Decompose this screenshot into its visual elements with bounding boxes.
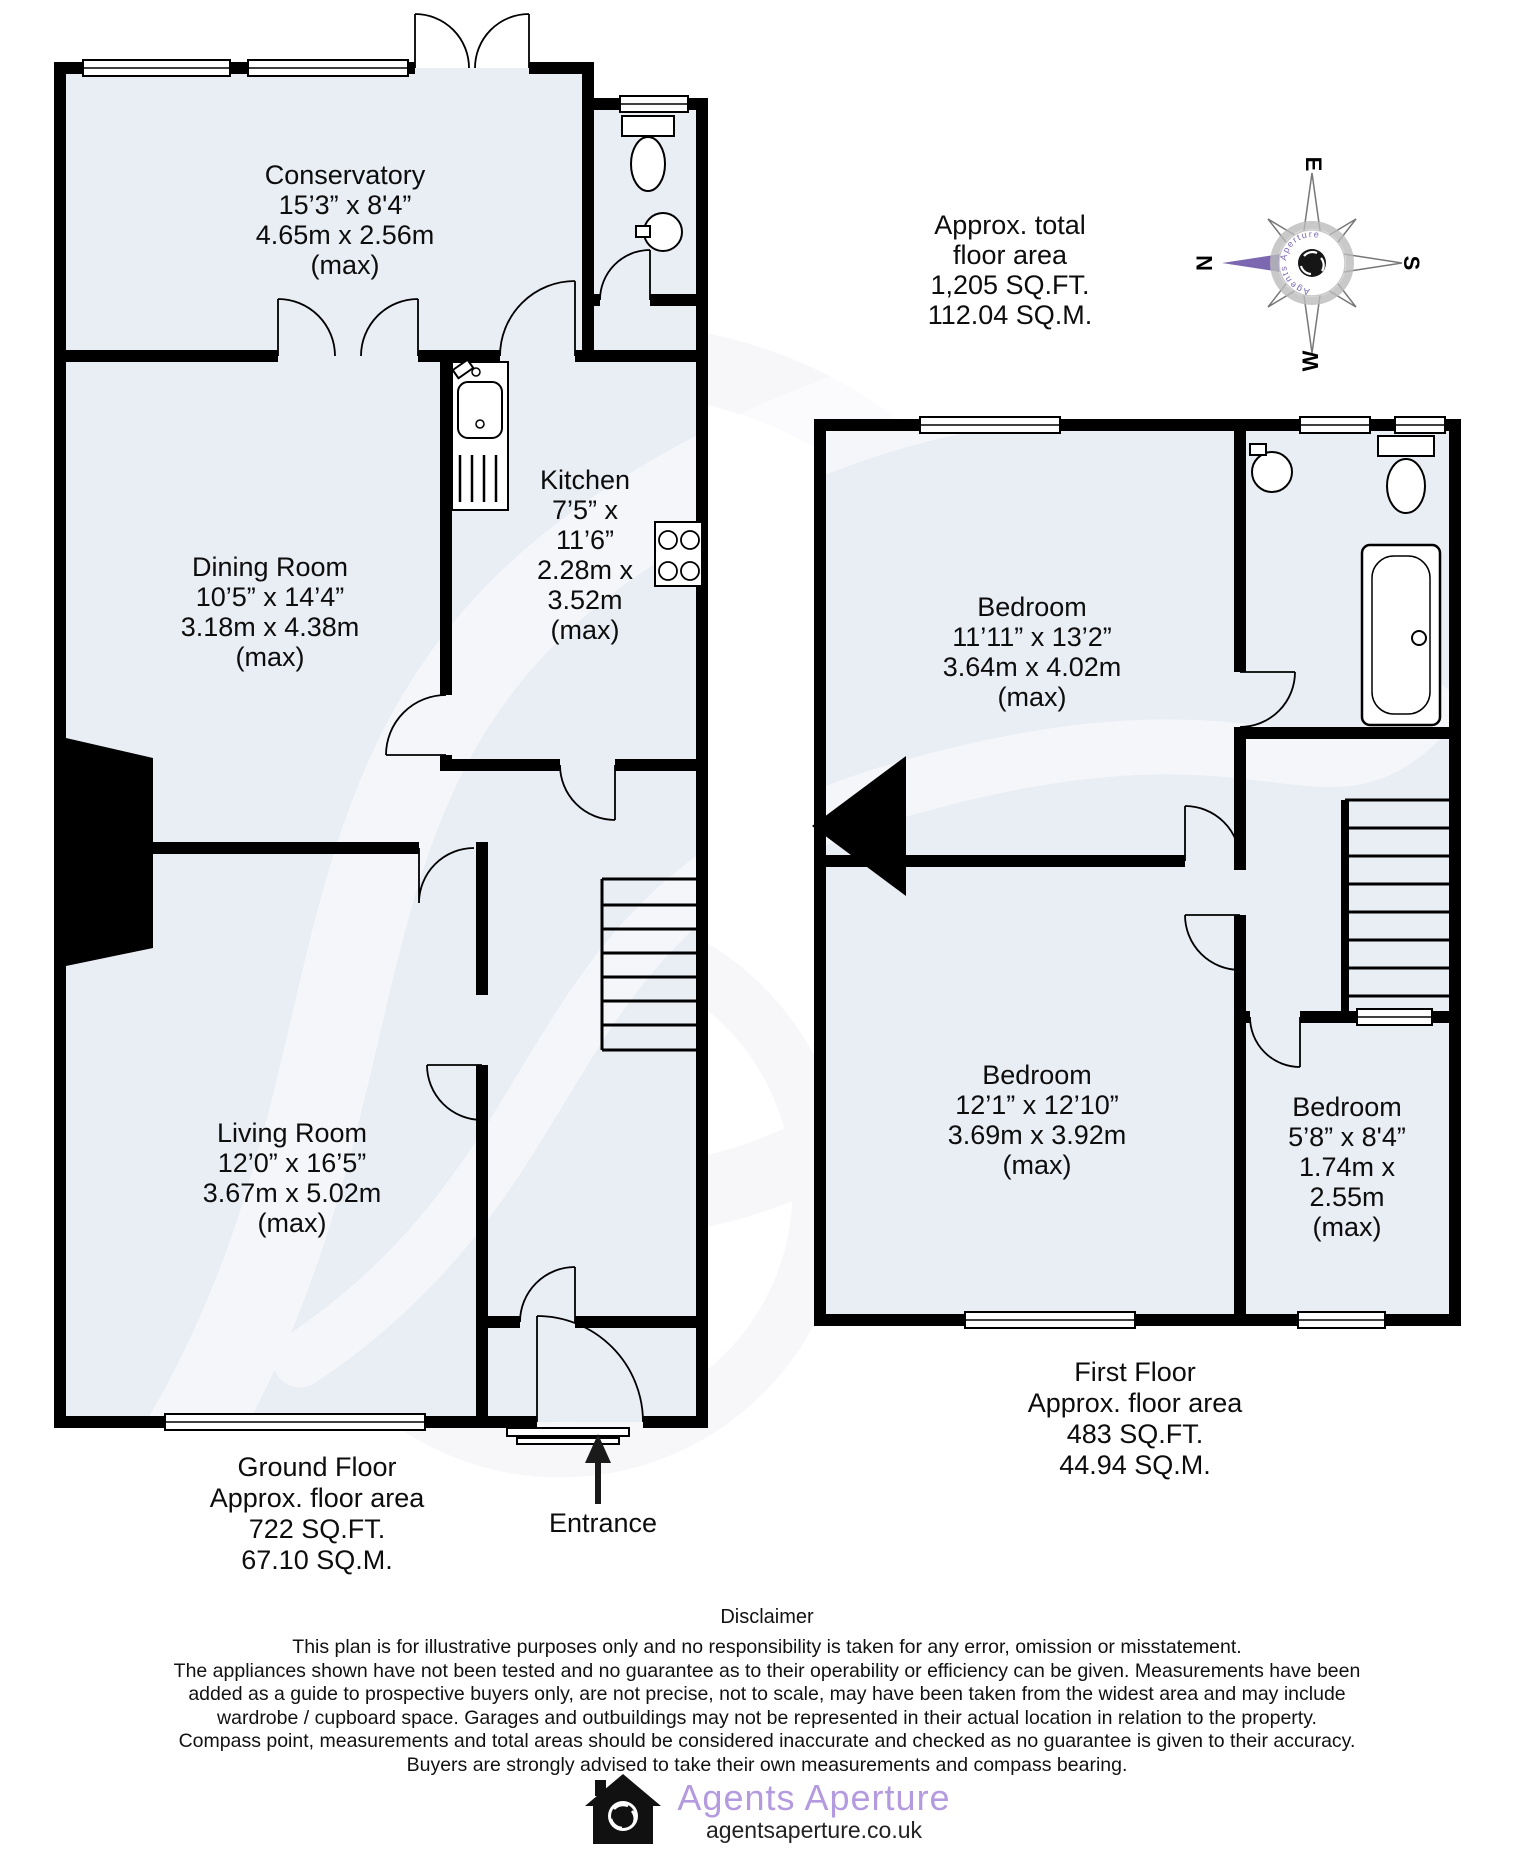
entrance-step [507, 1428, 629, 1444]
footer-website-url: agentsaperture.co.uk [706, 1817, 922, 1843]
room-dims-metric: 3.67m x 5.02m [152, 1178, 432, 1208]
room-dims-metric: 2.28m x [505, 555, 665, 585]
room-note: (max) [1247, 1212, 1447, 1242]
total-area-label: Approx. total floor area 1,205 SQ.FT. 11… [880, 210, 1140, 330]
caption-line: 483 SQ.FT. [975, 1419, 1295, 1450]
compass-label-n: N [1192, 255, 1217, 271]
room-name: Bedroom [897, 1060, 1177, 1090]
room-note: (max) [892, 682, 1172, 712]
disclaimer-line: wardrobe / cupboard space. Garages and o… [12, 1707, 1522, 1731]
room-name: Living Room [152, 1118, 432, 1148]
ground-floor-caption: Ground Floor Approx. floor area 722 SQ.F… [157, 1452, 477, 1576]
caption-line: Approx. floor area [157, 1483, 477, 1514]
caption-line: 67.10 SQ.M. [157, 1545, 477, 1576]
room-dims-imperial: 12’0” x 16’5” [152, 1148, 432, 1178]
room-dims-imperial: 7’5” x [505, 495, 665, 525]
room-dims-metric: 3.52m [505, 585, 665, 615]
room-dims-metric: 4.65m x 2.56m [205, 220, 485, 250]
room-note: (max) [505, 615, 665, 645]
total-area-line: floor area [880, 240, 1140, 270]
living-room-label: Living Room 12’0” x 16’5” 3.67m x 5.02m … [152, 1118, 432, 1238]
caption-line: 722 SQ.FT. [157, 1514, 477, 1545]
total-area-line: Approx. total [880, 210, 1140, 240]
window [620, 96, 688, 112]
window [83, 60, 230, 76]
room-note: (max) [130, 642, 410, 672]
footer-brand-name: Agents Aperture [677, 1779, 950, 1817]
total-area-line: 1,205 SQ.FT. [880, 270, 1140, 300]
room-dims-imperial: 15’3” x 8'4” [205, 190, 485, 220]
bedroom2-label: Bedroom 12’1” x 12’10” 3.69m x 3.92m (ma… [897, 1060, 1177, 1180]
compass-label-e: E [1301, 157, 1326, 172]
room-dims-metric: 3.18m x 4.38m [130, 612, 410, 642]
disclaimer-line: added as a guide to prospective buyers o… [12, 1683, 1522, 1707]
total-area-line: 112.04 SQ.M. [880, 300, 1140, 330]
house-aperture-logo-icon [583, 1772, 663, 1850]
room-note: (max) [897, 1150, 1177, 1180]
window [165, 1414, 425, 1430]
kitchen-sink-unit [452, 360, 508, 510]
window [248, 60, 408, 76]
disclaimer-line: Compass point, measurements and total ar… [12, 1730, 1522, 1754]
window [1395, 417, 1445, 433]
entrance-label: Entrance [483, 1508, 723, 1539]
bedroom1-label: Bedroom 11’11” x 13’2” 3.64m x 4.02m (ma… [892, 592, 1172, 712]
footer-brand-block: Agents Aperture agentsaperture.co.uk [0, 1772, 1534, 1850]
room-name: Kitchen [505, 465, 665, 495]
room-note: (max) [205, 250, 485, 280]
floorplan-canvas: Agents Aperture N E S W Approx. total fl… [0, 0, 1534, 1863]
room-dims-metric: 3.64m x 4.02m [892, 652, 1172, 682]
room-dims-metric: 1.74m x [1247, 1152, 1447, 1182]
window [1300, 417, 1370, 433]
kitchen-label: Kitchen 7’5” x 11’6” 2.28m x 3.52m (max) [505, 465, 665, 645]
disclaimer-line: This plan is for illustrative purposes o… [12, 1636, 1522, 1660]
room-name: Dining Room [130, 552, 410, 582]
conservatory-label: Conservatory 15’3” x 8'4” 4.65m x 2.56m … [205, 160, 485, 280]
compass-label-s: S [1399, 256, 1424, 271]
room-dims-imperial: 12’1” x 12’10” [897, 1090, 1177, 1120]
bedroom3-label: Bedroom 5’8” x 8'4” 1.74m x 2.55m (max) [1247, 1092, 1447, 1242]
window [1357, 1009, 1432, 1025]
window [1298, 1312, 1385, 1328]
room-name: Bedroom [892, 592, 1172, 622]
ground-bay-window [54, 738, 153, 966]
window [965, 1312, 1135, 1328]
bathtub-icon [1362, 545, 1440, 725]
caption-line: First Floor [975, 1357, 1295, 1388]
room-name: Conservatory [205, 160, 485, 190]
dining-room-label: Dining Room 10’5” x 14’4” 3.18m x 4.38m … [130, 552, 410, 672]
room-dims-imperial: 10’5” x 14’4” [130, 582, 410, 612]
room-dims-imperial: 11’11” x 13’2” [892, 622, 1172, 652]
caption-line: Approx. floor area [975, 1388, 1295, 1419]
first-floor-caption: First Floor Approx. floor area 483 SQ.FT… [975, 1357, 1295, 1481]
room-note: (max) [152, 1208, 432, 1238]
room-dims-metric: 3.69m x 3.92m [897, 1120, 1177, 1150]
disclaimer-line: The appliances shown have not been teste… [12, 1660, 1522, 1684]
room-dims-imperial: 11’6” [505, 525, 665, 555]
room-dims-metric: 2.55m [1247, 1182, 1447, 1212]
room-dims-imperial: 5’8” x 8'4” [1247, 1122, 1447, 1152]
compass-label-w: W [1298, 350, 1323, 371]
room-name: Bedroom [1247, 1092, 1447, 1122]
window [920, 417, 1060, 433]
caption-line: 44.94 SQ.M. [975, 1450, 1295, 1481]
disclaimer-title: Disclaimer [0, 1606, 1534, 1629]
caption-line: Ground Floor [157, 1452, 477, 1483]
compass-aperture-icon [1298, 249, 1326, 277]
disclaimer-text: This plan is for illustrative purposes o… [12, 1636, 1522, 1777]
